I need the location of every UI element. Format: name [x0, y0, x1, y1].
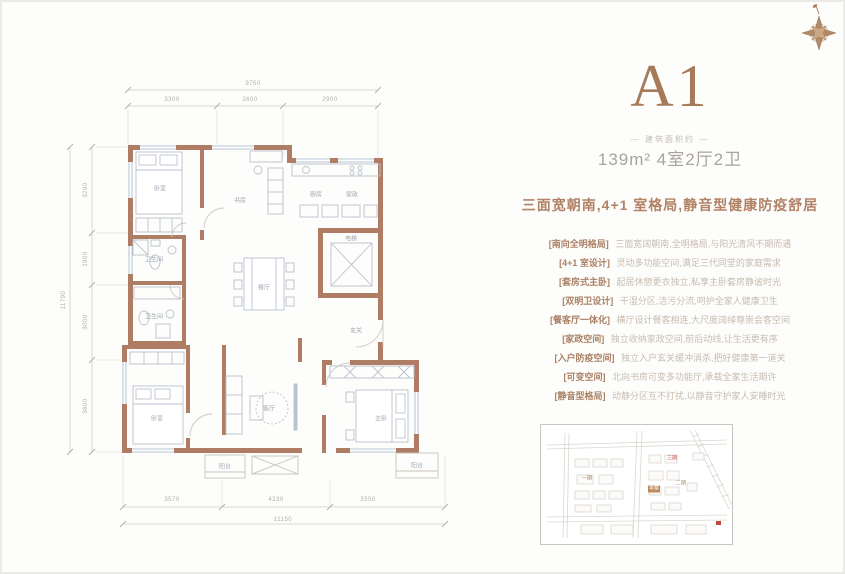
balconies-layer — [205, 453, 438, 478]
feature-label: [可变空间] — [563, 372, 605, 382]
room-label: 主卧 — [375, 414, 387, 423]
room-label: 家政 — [346, 190, 358, 199]
dimension-label: 3000 — [83, 314, 89, 329]
room-label: 阳台 — [219, 462, 231, 471]
feature-desc: 动静分区互不打扰,以静音守护家人安睡时光 — [612, 391, 786, 401]
room-label: 书房 — [234, 196, 246, 205]
room-label: 卧室 — [151, 414, 163, 423]
feature-desc: 横厅设计餐客相连,大尺度阔绰尊崇会客空间 — [617, 315, 791, 325]
dimension-label: 1900 — [83, 251, 89, 266]
room-label: 阳台 — [411, 461, 423, 470]
feature-label: [静音型格局] — [554, 391, 605, 401]
feature-label: [餐客厅一体化] — [550, 315, 610, 325]
dimension-label: 3290 — [83, 182, 89, 197]
unit-tagline: 三面宽朝南,4+1 室格局,静音型健康防疫舒居 — [500, 195, 840, 215]
room-label: 玄关 — [350, 326, 362, 335]
feature-desc: 独立收纳家政空间,前后动线,让生活更有序 — [611, 334, 778, 344]
room-label: 餐厅 — [258, 283, 270, 292]
feature-label: [家政空间] — [562, 334, 604, 344]
feature-item: [可变空间] 北向书房可变多功能厅,承载全家生活期许 — [500, 368, 840, 387]
site-map-drawing — [541, 425, 732, 544]
feature-item: [家政空间] 独立收纳家政空间,前后动线,让生活更有序 — [500, 330, 840, 349]
room-label: 卫生间 — [145, 312, 163, 321]
feature-desc: 灵动多功能空间,满足三代同堂的家庭需求 — [616, 258, 781, 268]
unit-title: A1 — [500, 56, 840, 116]
feature-item: [4+1 室设计] 灵动多功能空间,满足三代同堂的家庭需求 — [500, 254, 840, 273]
map-label: 本案 — [648, 486, 660, 493]
dimension-label: 3600 — [83, 398, 89, 413]
feature-item: [餐客厅一体化] 横厅设计餐客相连,大尺度阔绰尊崇会客空间 — [500, 311, 840, 330]
dimension-label: 3570 — [164, 497, 179, 503]
map-label: 一期 — [581, 476, 593, 483]
room-label: 厨房 — [310, 190, 322, 199]
dimension-label: 3350 — [360, 497, 375, 503]
feature-list: [南向全明格局] 三面宽阔朝南,全明格局,与阳光清风不期而遇 [4+1 室设计]… — [500, 235, 840, 406]
feature-desc: 北向书房可变多功能厅,承载全家生活期许 — [612, 372, 777, 382]
dimension-label: 9750 — [245, 81, 260, 87]
map-label: 二期 — [675, 481, 687, 488]
map-label: 三期 — [666, 456, 678, 463]
feature-item: [静音型格局] 动静分区互不打扰,以静音守护家人安睡时光 — [500, 387, 840, 406]
feature-desc: 干湿分区,洁污分流,呵护全家人健康卫生 — [620, 296, 778, 306]
dimension-label: 11790 — [61, 291, 67, 310]
feature-label: [套房式主卧] — [559, 277, 610, 287]
feature-item: [双明卫设计] 干湿分区,洁污分流,呵护全家人健康卫生 — [500, 292, 840, 311]
dimension-label: 3300 — [164, 97, 179, 103]
feature-desc: 三面宽阔朝南,全明格局,与阳光清风不期而遇 — [615, 239, 791, 249]
feature-item: [入户防疫空间] 独立入户玄关缓冲消杀,把好健康第一道关 — [500, 349, 840, 368]
feature-desc: 独立入户玄关缓冲消杀,把好健康第一道关 — [621, 353, 786, 363]
dimension-label: 2600 — [242, 97, 257, 103]
room-label: 电梯 — [345, 234, 357, 243]
feature-label: [双明卫设计] — [562, 296, 613, 306]
area-note: — 建筑面积约 — — [500, 134, 840, 145]
dimension-label: 11150 — [274, 517, 292, 523]
dimension-label: 4230 — [268, 497, 283, 503]
unit-spec: 139m² 4室2厅2卫 — [500, 145, 840, 170]
feature-desc: 起居休憩更衣独立,私享主卧套房静谧时光 — [617, 277, 782, 287]
feature-label: [4+1 室设计] — [559, 258, 610, 268]
room-label: 客厅 — [263, 404, 275, 413]
feature-label: [入户防疫空间] — [554, 353, 614, 363]
feature-label: [南向全明格局] — [549, 239, 609, 249]
feature-item: [南向全明格局] 三面宽阔朝南,全明格局,与阳光清风不期而遇 — [500, 235, 840, 254]
map-marker — [716, 521, 721, 525]
feature-item: [套房式主卧] 起居休憩更衣独立,私享主卧套房静谧时光 — [500, 273, 840, 292]
dimension-label: 2900 — [322, 97, 337, 103]
room-label: 卧室 — [154, 184, 166, 193]
compass-icon — [802, 3, 836, 50]
site-map: 一期三期二期本案 — [540, 424, 733, 545]
room-label: 卫生间 — [145, 255, 163, 264]
